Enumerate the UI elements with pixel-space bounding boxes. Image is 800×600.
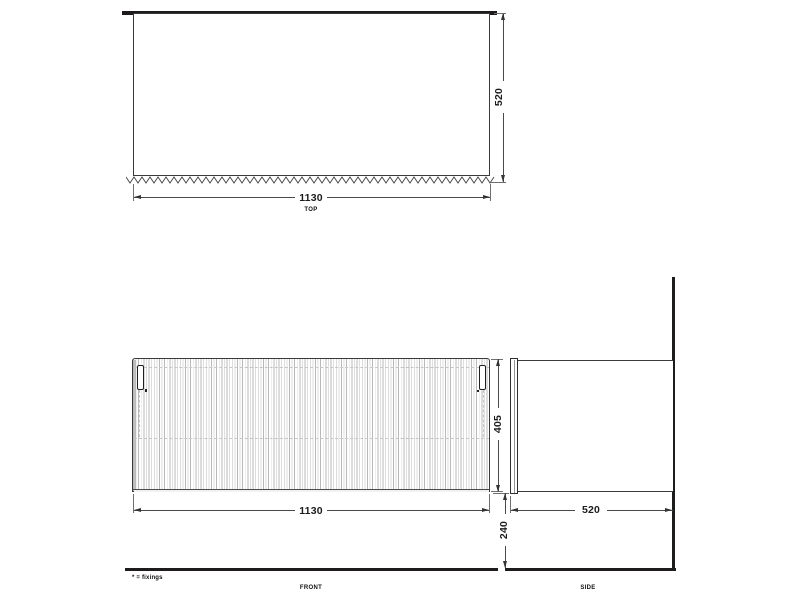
side-door-inner-line	[514, 360, 515, 493]
hidden-line-right	[483, 390, 484, 437]
hidden-line-left	[139, 390, 140, 437]
fixing-mark-left	[145, 389, 148, 392]
arrowhead-icon	[503, 493, 507, 500]
front-left-edge-shade	[134, 360, 136, 491]
side-view-label: SIDE	[568, 585, 608, 591]
arrowhead-icon	[501, 175, 505, 182]
handle-right	[479, 365, 486, 390]
floor-line-front	[125, 568, 498, 571]
front-base-strip	[134, 490, 489, 492]
arrowhead-icon	[496, 359, 500, 366]
arrowhead-icon	[482, 508, 489, 512]
arrowhead-icon	[665, 508, 672, 512]
top-depth-value: 520	[493, 81, 505, 113]
top-view-outline	[133, 13, 490, 176]
front-width-value: 1130	[295, 505, 327, 517]
side-clearance-value: 240	[498, 514, 510, 546]
arrowhead-icon	[503, 561, 507, 568]
side-body-outline	[517, 360, 673, 492]
technical-drawing: 520 1130 TOP	[0, 0, 800, 600]
side-depth-value: 520	[575, 504, 607, 516]
zigzag-front-edge-icon	[126, 175, 495, 186]
hidden-line-top	[134, 367, 489, 368]
arrowhead-icon	[501, 13, 505, 20]
front-view-outline	[132, 358, 490, 492]
arrowhead-icon	[134, 508, 141, 512]
floor-line-side	[505, 568, 676, 571]
fixings-footnote: * = fixings	[132, 575, 163, 581]
arrowhead-icon	[496, 485, 500, 492]
arrowhead-icon	[483, 195, 490, 199]
hidden-line-bottom	[134, 438, 489, 439]
arrowhead-icon	[134, 195, 141, 199]
top-width-value: 1130	[295, 192, 327, 204]
fixing-mark-right	[477, 390, 480, 393]
front-view-label: FRONT	[291, 585, 331, 591]
front-height-value: 405	[492, 408, 504, 440]
arrowhead-icon	[511, 508, 518, 512]
top-view-label: TOP	[291, 207, 331, 213]
handle-left	[137, 365, 144, 390]
